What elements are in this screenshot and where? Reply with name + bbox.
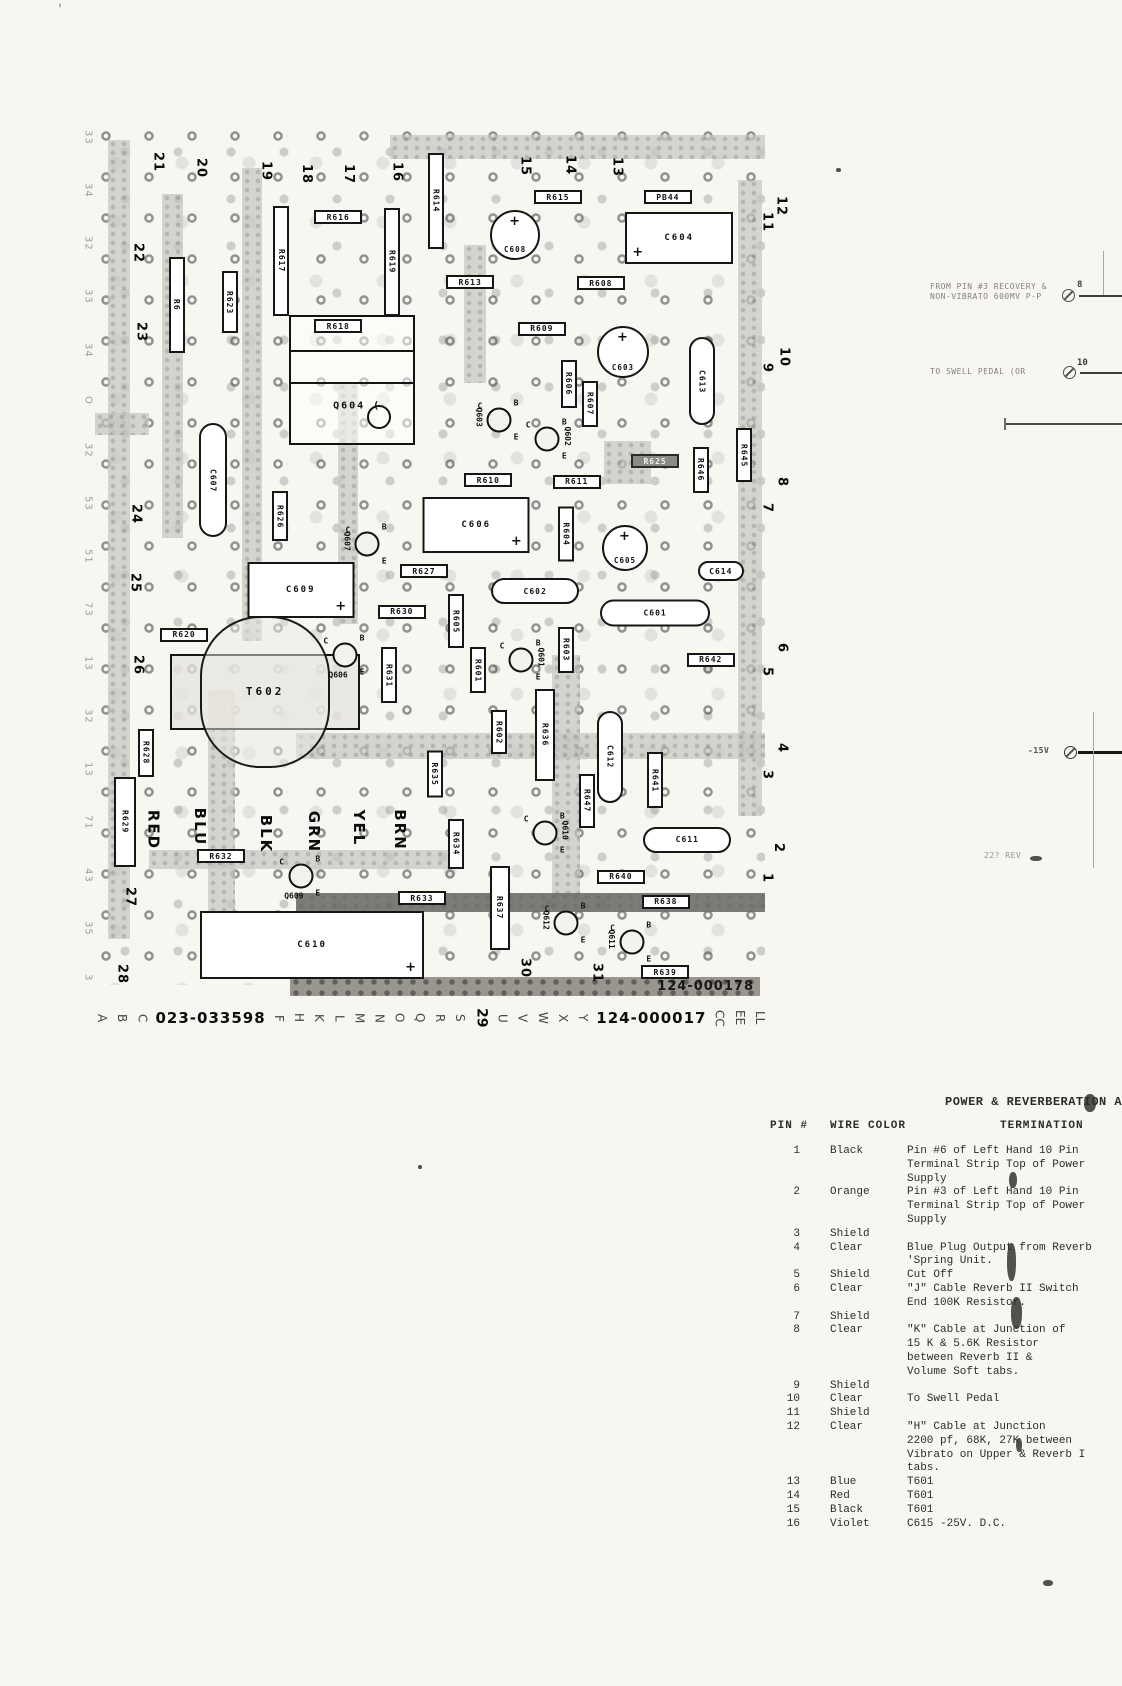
grid-letter: U <box>496 1014 510 1023</box>
term-cell: T601 <box>907 1504 1122 1518</box>
cap-label: C606 <box>461 520 491 530</box>
lead-b-label: B <box>382 522 387 531</box>
grid-letter: M <box>352 1013 366 1023</box>
cap-label: C607 <box>208 469 217 492</box>
cap-label: C604 <box>664 233 694 243</box>
part-number: 023-033598 <box>155 1009 265 1027</box>
color-cell: Orange <box>800 1186 907 1227</box>
table-row: 16VioletC615 -25V. D.C. <box>700 1518 1122 1532</box>
component-Q602: CBEQ602 <box>535 426 560 451</box>
component-Q611: CBEQ611 <box>619 930 644 955</box>
ink-smudge <box>1016 1438 1022 1452</box>
edge-pin-29: 29 <box>473 1008 489 1027</box>
ink-smudge <box>1011 1297 1022 1329</box>
component-R606: R606 <box>561 360 577 408</box>
transistor-label: Q601 <box>537 647 546 666</box>
edge-pin-9: 9 <box>760 363 775 373</box>
terminal-pin-number: 8 <box>1077 280 1082 290</box>
copper-trace <box>464 245 487 383</box>
table-row: 4ClearBlue Plug Output from Reverb 'Spri… <box>700 1242 1122 1270</box>
ink-smudge <box>1043 1580 1053 1586</box>
copper-trace <box>738 180 762 816</box>
component-Q610: CBEQ610 <box>533 820 558 845</box>
component-R638: R638 <box>642 895 690 909</box>
component-R617: R617 <box>273 206 289 316</box>
transistor-label: Q603 <box>475 407 484 426</box>
table-row: 11Shield <box>700 1407 1122 1421</box>
lead-e-label: E <box>382 556 387 565</box>
color-cell: Black <box>800 1504 907 1518</box>
bottom-stamp-band: 124-000178 <box>290 977 760 996</box>
component-T602: T602 <box>170 654 360 730</box>
table-row: 7Shield <box>700 1311 1122 1325</box>
polarity-plus-icon: + <box>405 961 417 974</box>
lead-c-label: C <box>526 420 531 429</box>
term-cell: T601 <box>907 1490 1122 1504</box>
pin-cell: 3 <box>700 1228 800 1242</box>
pin-cell: 15 <box>700 1504 800 1518</box>
edge-pin-16: 16 <box>390 162 405 182</box>
edge-pin-30: 30 <box>518 958 533 978</box>
margin-glyph: 33 <box>83 130 94 145</box>
component-R647: R647 <box>579 774 595 828</box>
cap-label: C613 <box>698 370 707 393</box>
copper-trace <box>95 413 149 435</box>
component-C608: +C608 <box>490 210 540 260</box>
lead-b-label: B <box>581 902 586 911</box>
edge-pin-4: 4 <box>774 743 789 753</box>
margin-glyph-column: 3334323334O325351731332137143353 <box>80 130 96 982</box>
edge-pin-25: 25 <box>128 573 143 593</box>
ink-smudge <box>1007 1243 1016 1281</box>
polarity-plus-icon: + <box>619 530 631 543</box>
lead-b-label: B <box>315 854 320 863</box>
grid-letter: H <box>292 1013 306 1022</box>
lead-c-label: C <box>323 636 328 645</box>
component-R632: R632 <box>197 849 245 863</box>
component-R616: R616 <box>314 210 362 224</box>
cap-label: C614 <box>709 567 732 576</box>
component-R601: R601 <box>470 647 486 693</box>
wire-line <box>1080 372 1122 374</box>
component-Q603: CBEQ603 <box>487 407 512 432</box>
grid-letter: X <box>556 1014 570 1022</box>
component-Q606: CBEQ606 <box>332 642 357 667</box>
ruled-line <box>1004 423 1122 425</box>
component-C614: C614 <box>698 561 744 581</box>
pin-cell: 6 <box>700 1283 800 1311</box>
edge-pin-14: 14 <box>563 155 578 175</box>
table-body: 1BlackPin #6 of Left Hand 10 Pin Termina… <box>700 1145 1122 1531</box>
component-Q607: CBEQ607 <box>355 531 380 556</box>
part-number: 124-000017 <box>596 1009 706 1027</box>
component-C609: C609+ <box>247 562 354 618</box>
pin-cell: 13 <box>700 1476 800 1490</box>
term-cell <box>907 1228 1122 1242</box>
color-cell: Black <box>800 1145 907 1186</box>
pcb-board: R616R615PB44R613R608R618R609R610R611R625… <box>95 125 765 985</box>
edge-pin-15: 15 <box>518 156 533 176</box>
wire-color-brn: BRN <box>391 809 409 851</box>
pin-cell: 12 <box>700 1421 800 1476</box>
wire-color-blk: BLK <box>257 814 275 853</box>
annotation-neg15v: -15V <box>1000 742 1122 762</box>
transistor-label: Q607 <box>343 531 352 550</box>
lead-b-label: B <box>562 417 567 426</box>
component-R615: R615 <box>534 190 582 204</box>
component-R613: R613 <box>446 275 494 289</box>
component-R639: R639 <box>641 965 689 979</box>
lead-e-label: E <box>560 845 565 854</box>
component-R634: R634 <box>448 819 464 869</box>
term-cell: T601 <box>907 1476 1122 1490</box>
board-stamp-number: 124-000178 <box>657 979 754 994</box>
edge-pin-2: 2 <box>771 843 786 853</box>
edge-pin-17: 17 <box>341 164 356 184</box>
color-cell: Clear <box>800 1421 907 1476</box>
lead-e-label: E <box>646 955 651 964</box>
scanned-page: ' R616R615PB44R613R608R618R609R610R611R6… <box>0 0 1122 1686</box>
component-Q601: CBEQ601 <box>509 647 534 672</box>
transistor-label: Q602 <box>563 426 572 445</box>
edge-pin-6: 6 <box>774 643 789 653</box>
table-row: 15BlackT601 <box>700 1504 1122 1518</box>
grid-letter: O <box>393 1013 407 1022</box>
lead-e-label: E <box>581 936 586 945</box>
copper-trace <box>162 194 183 538</box>
wire-line-vertical <box>1103 251 1104 295</box>
term-cell <box>907 1380 1122 1394</box>
annotation-note1: FROM PIN #3 RECOVERY & NON-VIBRATO 600MV… <box>930 282 1122 314</box>
grid-letter: W <box>536 1012 550 1024</box>
color-cell: Red <box>800 1490 907 1504</box>
grid-letter: L <box>332 1015 346 1022</box>
transformer-label: T602 <box>246 685 285 698</box>
transistor-label: Q606 <box>328 670 347 679</box>
table-row: 1BlackPin #6 of Left Hand 10 Pin Termina… <box>700 1145 1122 1186</box>
component-C612: C612 <box>597 711 623 803</box>
margin-glyph: 32 <box>83 709 94 724</box>
edge-pin-19: 19 <box>258 161 273 181</box>
color-cell: Clear <box>800 1324 907 1379</box>
connection-table: POWER & REVERBERATION AMPLI PIN # WIRE C… <box>700 1095 1122 1531</box>
cap-label: C611 <box>676 835 699 844</box>
edge-pin-1: 1 <box>760 873 775 883</box>
margin-glyph: 32 <box>83 236 94 251</box>
cap-label: C608 <box>492 245 538 254</box>
component-R611: R611 <box>553 475 601 489</box>
lead-b-label: B <box>646 921 651 930</box>
copper-trace <box>552 655 580 896</box>
margin-glyph: 33 <box>83 289 94 304</box>
cap-label: C612 <box>606 745 615 768</box>
term-cell: Pin #3 of Left Hand 10 Pin Terminal Stri… <box>907 1186 1122 1227</box>
component-R614: R614 <box>428 153 444 249</box>
grid-letter-row: ABC023-033598FHKLMNOQRS29UVWXY124-000017… <box>95 997 767 1039</box>
lead-b-label: B <box>514 398 519 407</box>
table-row: 13BlueT601 <box>700 1476 1122 1490</box>
lead-c-label: C <box>279 857 284 866</box>
component-R628: R628 <box>138 729 154 777</box>
margin-glyph: 51 <box>83 549 94 564</box>
margin-glyph: 32 <box>83 443 94 458</box>
transistor-label: Q609 <box>284 891 303 900</box>
edge-pin-22: 22 <box>130 243 145 263</box>
lead-c-label: C <box>500 641 505 650</box>
component-C601: C601 <box>600 599 710 626</box>
term-cell: To Swell Pedal <box>907 1393 1122 1407</box>
component-R630: R630 <box>378 605 426 619</box>
component-R640: R640 <box>597 870 645 884</box>
color-cell: Blue <box>800 1476 907 1490</box>
wire-color-grn: GRN <box>305 811 323 853</box>
edge-pin-10: 10 <box>776 347 791 367</box>
edge-pin-18: 18 <box>299 164 314 184</box>
component-R6: R6 <box>169 257 185 353</box>
polarity-plus-icon: + <box>632 246 644 259</box>
polarity-plus-icon: + <box>335 600 347 613</box>
grid-letter: K <box>312 1014 326 1022</box>
margin-glyph: 35 <box>83 921 94 936</box>
ink-smudge <box>1030 856 1042 861</box>
edge-pin-8: 8 <box>774 477 789 487</box>
edge-pin-11: 11 <box>760 212 775 232</box>
header-pin: PIN # <box>770 1120 808 1132</box>
component-R627: R627 <box>400 564 448 578</box>
annotation-note2: TO SWELL PEDAL (OR 10 <box>930 362 1122 394</box>
color-cell: Clear <box>800 1242 907 1270</box>
component-R645: R645 <box>736 428 752 482</box>
component-R641: R641 <box>647 752 663 808</box>
cap-label: C603 <box>599 363 647 372</box>
color-cell: Clear <box>800 1283 907 1311</box>
lead-e-label: E <box>536 672 541 681</box>
margin-glyph: 13 <box>83 762 94 777</box>
polarity-plus-icon: + <box>511 535 523 548</box>
component-C611: C611 <box>643 827 731 853</box>
lead-c-label: C <box>524 814 529 823</box>
polarity-plus-icon: + <box>509 215 521 228</box>
note1-text: FROM PIN #3 RECOVERY & NON-VIBRATO 600MV… <box>930 282 1060 302</box>
component-R619: R619 <box>384 208 400 316</box>
grid-letter: LL <box>753 1011 767 1024</box>
component-PB44: PB44 <box>644 190 692 204</box>
terminal-pin-number: 10 <box>1077 358 1088 368</box>
grid-letter: C <box>135 1014 149 1022</box>
annotation-fragment: 22? REV <box>984 851 1021 860</box>
scan-artifact-mark: ' <box>58 2 62 18</box>
component-Q609: CBEQ609 <box>288 863 313 888</box>
component-R646: R646 <box>693 447 709 493</box>
component-C613: C613 <box>689 337 715 425</box>
component-R618: R618 <box>314 319 362 333</box>
grid-letter: A <box>95 1014 109 1022</box>
component-R642: R642 <box>687 653 735 667</box>
pin-cell: 1 <box>700 1145 800 1186</box>
note2-text: TO SWELL PEDAL (OR <box>930 367 1060 377</box>
pin-cell: 2 <box>700 1186 800 1227</box>
component-R609: R609 <box>518 322 566 336</box>
terminal-circle-icon <box>1062 289 1075 302</box>
pin-cell: 14 <box>700 1490 800 1504</box>
edge-pin-24: 24 <box>128 504 143 524</box>
edge-pin-26: 26 <box>130 655 145 675</box>
edge-pin-31: 31 <box>589 963 604 983</box>
grid-letter: F <box>272 1015 286 1022</box>
component-R620: R620 <box>160 628 208 642</box>
lead-e-label: E <box>360 667 365 676</box>
edge-pin-23: 23 <box>134 322 149 342</box>
table-row: 2OrangePin #3 of Left Hand 10 Pin Termin… <box>700 1186 1122 1227</box>
edge-pin-7: 7 <box>760 503 775 513</box>
ink-smudge <box>418 1165 422 1169</box>
component-R603: R603 <box>558 627 574 673</box>
table-header: PIN # WIRE COLOR TERMINATION <box>700 1120 1122 1134</box>
cap-label: C610 <box>297 940 327 950</box>
component-R626: R626 <box>272 491 288 541</box>
table-row: 5ShieldCut Off <box>700 1269 1122 1283</box>
margin-glyph: 43 <box>83 868 94 883</box>
term-cell: "K" Cable at Junction of 15 K & 5.6K Res… <box>907 1324 1122 1379</box>
component-R602: R602 <box>491 710 507 754</box>
note1-line2: NON-VIBRATO 600MV P-P <box>930 292 1060 302</box>
component-C607: C607 <box>199 423 227 537</box>
color-cell: Violet <box>800 1518 907 1532</box>
component-Q612: CBEQ612 <box>554 911 579 936</box>
margin-glyph: O <box>83 396 94 405</box>
edge-pin-20: 20 <box>193 158 208 178</box>
lead-e-label: E <box>562 451 567 460</box>
table-row: 12Clear"H" Cable at Junction 2200 pf, 68… <box>700 1421 1122 1476</box>
terminal-circle-icon <box>1063 366 1076 379</box>
edge-pin-12: 12 <box>774 196 789 216</box>
grid-letter: CC <box>713 1010 727 1027</box>
pin-cell: 11 <box>700 1407 800 1421</box>
color-cell: Shield <box>800 1269 907 1283</box>
lead-b-label: B <box>360 633 365 642</box>
wire-color-red: RED <box>144 810 162 850</box>
grid-letter: Q <box>413 1013 427 1022</box>
header-wire-color: WIRE COLOR <box>830 1120 906 1132</box>
wire-line <box>1079 295 1122 297</box>
cap-label: C602 <box>524 587 547 596</box>
lead-e-label: E <box>315 888 320 897</box>
grid-letter: N <box>373 1014 387 1023</box>
cap-label: C609 <box>286 585 316 595</box>
edge-pin-21: 21 <box>150 152 165 172</box>
component-C602: C602 <box>491 578 579 604</box>
component-C604: C604+ <box>625 212 733 264</box>
neg15v-label: -15V <box>1028 746 1068 756</box>
pin-cell: 9 <box>700 1380 800 1394</box>
table-row: 3Shield <box>700 1228 1122 1242</box>
term-cell <box>907 1407 1122 1421</box>
edge-pin-27: 27 <box>122 887 137 907</box>
pin-cell: 7 <box>700 1311 800 1325</box>
color-cell: Shield <box>800 1228 907 1242</box>
table-row: 9Shield <box>700 1380 1122 1394</box>
component-R625: R625 <box>631 454 679 468</box>
component-R604: R604 <box>558 507 574 562</box>
margin-glyph: 34 <box>83 183 94 198</box>
table-row: 6Clear"J" Cable Reverb II Switch End 100… <box>700 1283 1122 1311</box>
margin-glyph: 71 <box>83 815 94 830</box>
grid-letter: S <box>453 1014 467 1022</box>
component-R637: R637 <box>490 866 510 950</box>
ic-label: Q604 ( <box>333 400 381 411</box>
cap-label: C605 <box>604 556 646 565</box>
color-cell: Shield <box>800 1380 907 1394</box>
ink-smudge <box>1084 1094 1096 1112</box>
table-row: 8Clear"K" Cable at Junction of 15 K & 5.… <box>700 1324 1122 1379</box>
grid-letter: EE <box>733 1010 747 1025</box>
component-C603: +C603 <box>597 326 649 378</box>
component-Q604: Q604 ( <box>289 315 415 445</box>
term-cell: C615 -25V. D.C. <box>907 1518 1122 1532</box>
transistor-label: Q610 <box>561 820 570 839</box>
lead-b-label: B <box>560 811 565 820</box>
polarity-plus-icon: + <box>617 331 629 344</box>
component-R636: R636 <box>535 689 555 781</box>
edge-pin-5: 5 <box>760 667 775 677</box>
component-C610: C610+ <box>200 911 424 979</box>
component-R608: R608 <box>577 276 625 290</box>
wire-color-yel: YEL <box>350 809 368 846</box>
color-cell: Clear <box>800 1393 907 1407</box>
grid-letter: R <box>433 1014 447 1022</box>
edge-pin-13: 13 <box>609 157 624 177</box>
component-R607: R607 <box>582 381 598 427</box>
table-row: 14RedT601 <box>700 1490 1122 1504</box>
component-R633: R633 <box>398 891 446 905</box>
grid-letter: B <box>115 1014 129 1022</box>
header-termination: TERMINATION <box>1000 1120 1084 1132</box>
component-R635: R635 <box>427 751 443 798</box>
color-cell: Shield <box>800 1407 907 1421</box>
component-C605: +C605 <box>602 525 648 571</box>
copper-trace <box>296 893 765 912</box>
wire-line <box>1078 751 1122 754</box>
pin-cell: 10 <box>700 1393 800 1407</box>
margin-glyph: 73 <box>83 602 94 617</box>
edge-pin-28: 28 <box>114 964 129 984</box>
pin-cell: 5 <box>700 1269 800 1283</box>
wire-color-blu: BLU <box>191 807 209 846</box>
pin-cell: 16 <box>700 1518 800 1532</box>
copper-trace <box>296 733 765 759</box>
ink-smudge <box>836 168 841 172</box>
lead-b-label: B <box>536 638 541 647</box>
ink-smudge <box>1009 1172 1017 1188</box>
margin-glyph: 3 <box>83 974 94 981</box>
term-cell: "H" Cable at Junction 2200 pf, 68K, 27K … <box>907 1421 1122 1476</box>
table-row: 10ClearTo Swell Pedal <box>700 1393 1122 1407</box>
grid-letter: Y <box>576 1014 590 1021</box>
margin-glyph: 34 <box>83 343 94 358</box>
component-R610: R610 <box>464 473 512 487</box>
pin-cell: 4 <box>700 1242 800 1270</box>
component-R631: R631 <box>381 647 397 703</box>
note1-line1: FROM PIN #3 RECOVERY & <box>930 282 1060 292</box>
edge-pin-3: 3 <box>760 770 775 780</box>
component-R605: R605 <box>448 594 464 648</box>
terminal-circle-icon <box>1064 746 1077 759</box>
component-C606: C606+ <box>423 497 530 553</box>
color-cell: Shield <box>800 1311 907 1325</box>
lead-e-label: E <box>514 432 519 441</box>
cap-label: C601 <box>643 608 666 617</box>
transistor-label: Q612 <box>542 911 551 930</box>
